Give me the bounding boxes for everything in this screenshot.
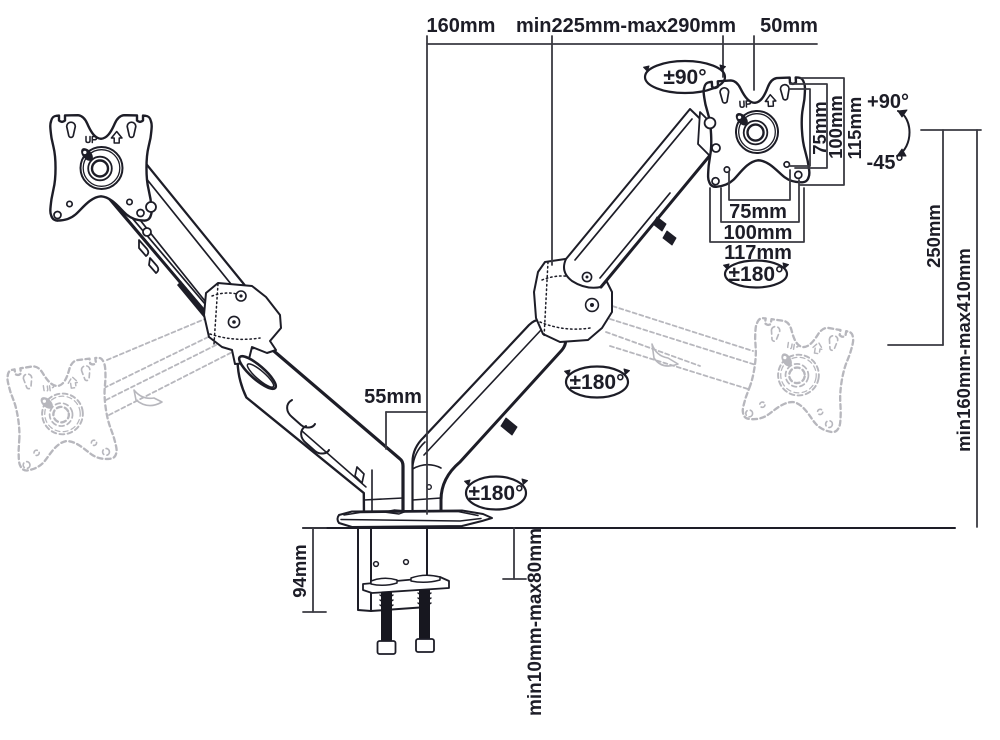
svg-text:±90°: ±90° bbox=[663, 66, 706, 89]
svg-text:115mm: 115mm bbox=[844, 97, 865, 160]
svg-text:55mm: 55mm bbox=[364, 386, 422, 408]
svg-text:50mm: 50mm bbox=[760, 15, 818, 37]
svg-text:75mm: 75mm bbox=[729, 201, 787, 223]
svg-text:160mm: 160mm bbox=[427, 15, 496, 37]
svg-text:±180°: ±180° bbox=[469, 482, 524, 505]
svg-text:±180°: ±180° bbox=[729, 263, 784, 286]
svg-text:min160mm-max410mm: min160mm-max410mm bbox=[953, 248, 974, 452]
svg-text:117mm: 117mm bbox=[724, 242, 792, 264]
svg-text:-45°: -45° bbox=[867, 152, 904, 174]
svg-text:100mm: 100mm bbox=[724, 222, 793, 244]
svg-text:±180°: ±180° bbox=[570, 371, 625, 394]
svg-text:100mm: 100mm bbox=[825, 95, 846, 159]
svg-text:250mm: 250mm bbox=[923, 204, 944, 268]
svg-text:94mm: 94mm bbox=[289, 544, 310, 597]
svg-text:min10mm-max80mm: min10mm-max80mm bbox=[525, 528, 546, 716]
svg-text:min225mm-max290mm: min225mm-max290mm bbox=[516, 15, 736, 37]
svg-text:+90°: +90° bbox=[867, 91, 909, 113]
